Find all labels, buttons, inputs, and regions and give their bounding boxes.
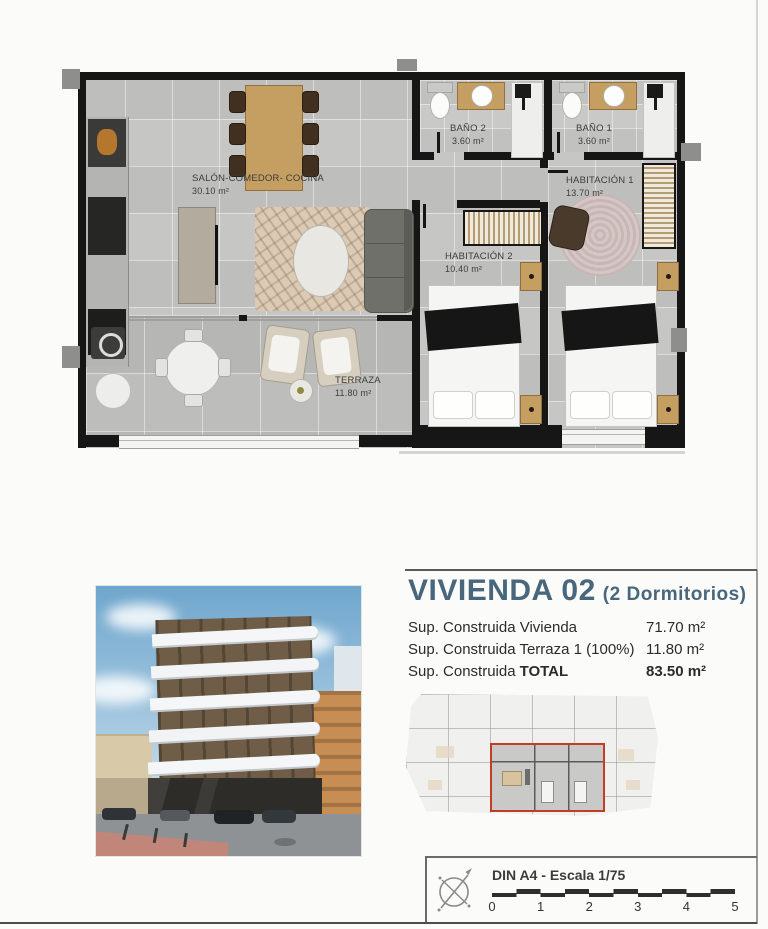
- wall: [412, 152, 434, 160]
- pilaster: [62, 346, 80, 368]
- frame-right-bottom: [756, 570, 758, 924]
- unit-title: VIVIENDA 02: [408, 574, 596, 607]
- room-area: 30.10 m²: [192, 185, 324, 197]
- wall: [412, 72, 420, 160]
- key-plan: [406, 694, 658, 816]
- wall: [78, 72, 86, 448]
- plant: [297, 387, 304, 394]
- washing-machine-door: [99, 333, 123, 357]
- unit-subtitle: (2 Dormitorios): [603, 584, 747, 605]
- highlighted-unit: [490, 743, 605, 812]
- room-name: BAÑO 2: [433, 123, 503, 135]
- pilaster: [681, 143, 701, 161]
- nightstand: [657, 262, 679, 291]
- toilet: [562, 92, 582, 119]
- row-label-bold: TOTAL: [520, 663, 569, 680]
- balcony-edge: [399, 451, 685, 454]
- room-name: HABITACIÓN 1: [566, 175, 634, 187]
- row-value: 11.80 m²: [646, 639, 718, 661]
- nightstand: [520, 262, 542, 291]
- terrace-table: [165, 340, 221, 396]
- scale-tick: 2: [586, 899, 593, 914]
- pillow: [475, 391, 515, 419]
- wardrobe: [463, 210, 543, 246]
- dining-chair: [302, 91, 319, 113]
- building-photo: [95, 585, 362, 857]
- car: [102, 808, 136, 820]
- coffee-table: [293, 225, 349, 297]
- car: [214, 810, 254, 824]
- scale-ticks: 0 1 2 3 4 5: [492, 899, 735, 913]
- north-compass-icon: [434, 862, 478, 914]
- wall: [677, 72, 685, 448]
- scale-tick: 5: [731, 899, 738, 914]
- key-plan-room: [436, 746, 454, 758]
- key-plan-bed: [574, 781, 587, 803]
- scale-bar-bottom: [492, 894, 735, 898]
- room-area: 3.60 m²: [559, 135, 629, 147]
- key-plan-rug: [502, 771, 522, 786]
- key-plan-room: [626, 780, 640, 790]
- scale-tick: 1: [537, 899, 544, 914]
- room-label-hab2: HABITACIÓN 2 10.40 m²: [445, 251, 513, 275]
- table-row: Sup. Construida Vivienda 71.70 m²: [408, 617, 718, 639]
- titleblock-left: [425, 856, 427, 922]
- pilaster: [671, 328, 687, 352]
- shower-stem: [654, 98, 657, 110]
- room-label-bano2: BAÑO 2 3.60 m²: [433, 123, 503, 147]
- pillow: [612, 391, 652, 419]
- sink: [603, 85, 625, 107]
- row-label: Sup. ConstruidaTOTAL: [408, 661, 646, 683]
- room-label-salon: SALÓN-COMEDOR- COCINA 30.10 m²: [192, 173, 324, 197]
- wall: [645, 425, 685, 448]
- page-title: VIVIENDA 02(2 Dormitorios): [408, 574, 746, 608]
- room-name: TERRAZA: [335, 375, 381, 387]
- tv-cabinet: [178, 207, 216, 304]
- dining-chair: [229, 123, 246, 145]
- dining-chair: [302, 123, 319, 145]
- lounge-chair-cushion: [320, 336, 352, 375]
- door-leaf: [548, 170, 568, 173]
- room-label-bano1: BAÑO 1 3.60 m²: [559, 123, 629, 147]
- tv: [215, 225, 218, 285]
- lounge-chair-cushion: [268, 334, 301, 374]
- pillow: [433, 391, 473, 419]
- frame-divider: [405, 569, 757, 571]
- manhole: [274, 838, 296, 846]
- shower-head-icon: [647, 84, 663, 98]
- terrace-side-table: [95, 373, 131, 409]
- room-name: SALÓN-COMEDOR- COCINA: [192, 173, 324, 185]
- key-plan-bed: [541, 781, 554, 803]
- room-area: 3.60 m²: [433, 135, 503, 147]
- row-value: 71.70 m²: [646, 617, 718, 639]
- cloud: [95, 676, 156, 704]
- shower-head-icon: [515, 84, 531, 98]
- sheet-scale-label: DIN A4 - Escala 1/75: [492, 867, 625, 883]
- room-name: HABITACIÓN 2: [445, 251, 513, 263]
- sofa-cushion-line: [366, 277, 404, 278]
- room-area: 11.80 m²: [335, 387, 381, 399]
- bedroom1-window: [562, 429, 645, 445]
- car: [262, 810, 296, 823]
- sink: [471, 85, 493, 107]
- table-row-total: Sup. ConstruidaTOTAL 83.50 m²: [408, 661, 718, 683]
- key-plan-room: [428, 780, 442, 790]
- car: [160, 810, 190, 821]
- sofa-back: [404, 209, 412, 311]
- wall: [359, 435, 420, 447]
- scale-tick: 0: [488, 899, 495, 914]
- row-value: 83.50 m²: [646, 661, 718, 683]
- terrace-chair: [184, 394, 203, 407]
- pillow: [570, 391, 610, 419]
- key-plan-sofa: [525, 769, 530, 785]
- dining-chair: [229, 91, 246, 113]
- toilet: [430, 92, 450, 119]
- scale-tick: 3: [634, 899, 641, 914]
- cooktop: [88, 197, 126, 255]
- pilaster: [62, 69, 80, 89]
- oven-light: [97, 129, 117, 155]
- room-area: 13.70 m²: [566, 187, 634, 199]
- row-label: Sup. Construida Vivienda: [408, 617, 646, 639]
- room-label-hab1: HABITACIÓN 1 13.70 m²: [566, 175, 634, 199]
- bed-throw: [561, 303, 658, 351]
- wall: [457, 200, 540, 208]
- pilaster: [397, 59, 417, 71]
- terrace-window: [119, 435, 359, 449]
- shower-stem: [522, 98, 525, 110]
- wall: [78, 72, 685, 80]
- nightstand: [657, 395, 679, 424]
- row-label: Sup. Construida Terraza 1 (100%): [408, 639, 646, 661]
- wardrobe: [642, 163, 676, 249]
- terrace-chair: [184, 329, 203, 342]
- nightstand: [520, 395, 542, 424]
- wall: [544, 72, 552, 160]
- area-table: Sup. Construida Vivienda 71.70 m² Sup. C…: [408, 617, 718, 683]
- scale-tick: 4: [683, 899, 690, 914]
- titleblock-top: [425, 856, 757, 858]
- terrace-chair: [218, 358, 231, 377]
- frame-right-top: [756, 0, 758, 570]
- room-name: BAÑO 1: [559, 123, 629, 135]
- door-leaf: [423, 204, 426, 228]
- frame-bottom: [0, 922, 757, 924]
- key-plan-room: [618, 749, 634, 761]
- wall: [377, 315, 412, 321]
- bed-throw: [424, 303, 521, 351]
- floor-plan: SALÓN-COMEDOR- COCINA 30.10 m² TERRAZA 1…: [59, 57, 711, 461]
- scale-bar: [492, 889, 735, 897]
- room-label-terraza: TERRAZA 11.80 m²: [335, 375, 381, 399]
- wall: [78, 435, 119, 447]
- sofa-cushion-line: [366, 243, 404, 244]
- terrace-chair: [155, 358, 168, 377]
- room-area: 10.40 m²: [445, 263, 513, 275]
- table-row: Sup. Construida Terraza 1 (100%) 11.80 m…: [408, 639, 718, 661]
- slider-mullion: [239, 315, 247, 321]
